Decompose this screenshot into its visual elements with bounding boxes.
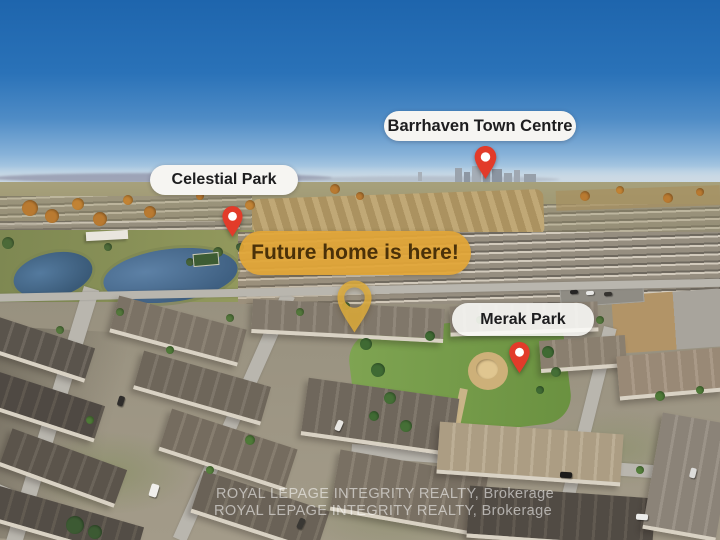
home-marker-icon — [335, 278, 374, 335]
tree — [206, 466, 214, 474]
building-silhouette — [504, 173, 512, 182]
building-silhouette — [514, 170, 520, 182]
tree — [425, 331, 435, 341]
house-row — [301, 378, 460, 457]
tree — [400, 420, 412, 432]
sports-court — [192, 252, 219, 267]
car — [560, 472, 572, 479]
tree — [245, 435, 255, 445]
tree — [123, 195, 133, 205]
tree — [226, 314, 234, 322]
building-silhouette — [464, 172, 470, 182]
watermark-line: ROYAL LEPAGE INTEGRITY REALTY, Brokerage — [216, 486, 554, 502]
tree — [356, 192, 364, 200]
car — [570, 290, 578, 295]
tree — [56, 326, 64, 334]
tree — [369, 411, 379, 421]
location-pin-icon — [507, 341, 532, 374]
tree — [296, 308, 304, 316]
tree — [2, 237, 14, 249]
tree — [72, 198, 84, 210]
tree — [596, 316, 604, 324]
tree — [655, 391, 665, 401]
tree — [330, 184, 340, 194]
house-row — [616, 348, 720, 401]
tree — [384, 392, 396, 404]
house-row — [109, 296, 246, 367]
tree — [45, 209, 59, 223]
tree — [536, 386, 544, 394]
tree — [696, 386, 704, 394]
tree — [551, 367, 561, 377]
watermark-line: ROYAL LEPAGE INTEGRITY REALTY, Brokerage — [214, 503, 552, 519]
car — [604, 292, 612, 297]
aerial-photo: ROYAL LEPAGE INTEGRITY REALTY, Brokerage… — [0, 0, 720, 540]
tree — [245, 200, 255, 210]
tree — [636, 466, 644, 474]
tree — [66, 516, 84, 534]
building-silhouette — [455, 168, 462, 182]
car — [586, 291, 594, 296]
tree — [144, 206, 156, 218]
tree — [360, 338, 372, 350]
tree — [542, 346, 554, 358]
tree — [166, 346, 174, 354]
label-merak-park: Merak Park — [452, 303, 594, 336]
tree — [663, 193, 673, 203]
car — [117, 395, 126, 406]
tree — [616, 186, 624, 194]
tree — [88, 525, 102, 539]
tree — [580, 191, 590, 201]
tree — [371, 363, 385, 377]
tree — [104, 243, 112, 251]
tree — [696, 188, 704, 196]
location-pin-icon — [221, 205, 244, 238]
house-row — [642, 412, 720, 540]
location-pin-icon — [472, 145, 499, 180]
building-silhouette — [524, 174, 536, 182]
car — [636, 514, 648, 521]
future-home-banner: Future home is here! — [239, 231, 471, 275]
tree — [93, 212, 107, 226]
car — [148, 483, 159, 498]
tree — [22, 200, 38, 216]
building-silhouette — [418, 172, 422, 181]
tree — [86, 416, 94, 424]
tree — [116, 308, 124, 316]
label-celestial-park: Celestial Park — [150, 165, 298, 195]
label-barrhaven-town-centre: Barrhaven Town Centre — [384, 111, 576, 141]
